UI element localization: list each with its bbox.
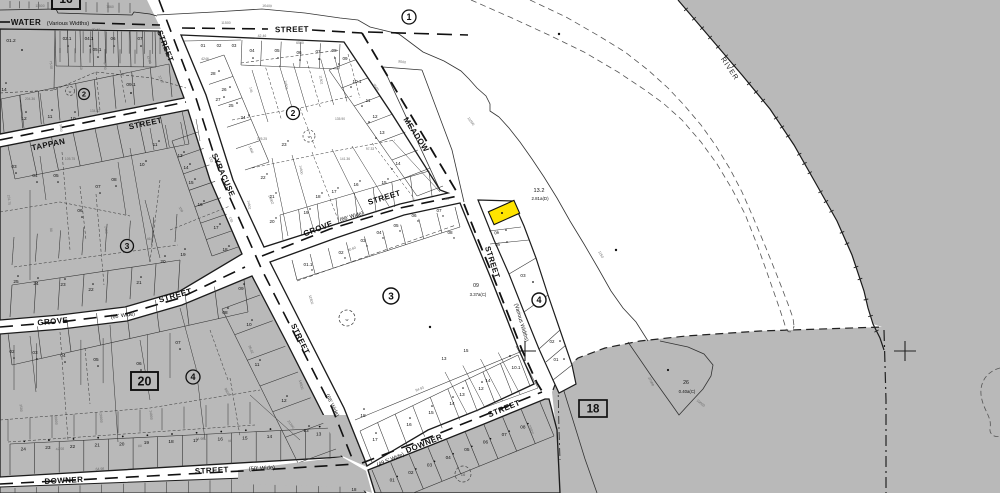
svg-text:04: 04 xyxy=(446,455,452,460)
svg-text:STREET: STREET xyxy=(195,465,229,476)
svg-text:16: 16 xyxy=(197,202,203,207)
svg-text:07: 07 xyxy=(137,36,143,41)
svg-text:11500: 11500 xyxy=(35,4,44,8)
svg-text:10: 10 xyxy=(246,322,252,327)
svg-text:02: 02 xyxy=(338,250,344,255)
svg-text:13.2: 13.2 xyxy=(534,188,545,194)
svg-text:13: 13 xyxy=(316,432,322,438)
svg-text:22: 22 xyxy=(260,175,266,180)
svg-text:0.40a(C): 0.40a(C) xyxy=(679,389,696,394)
svg-text:08: 08 xyxy=(520,425,526,430)
svg-text:98: 98 xyxy=(228,439,232,443)
svg-text:04: 04 xyxy=(60,353,66,358)
svg-text:25: 25 xyxy=(13,279,19,284)
svg-text:07: 07 xyxy=(502,432,508,437)
svg-text:26: 26 xyxy=(221,87,227,92)
svg-text:10: 10 xyxy=(461,472,466,477)
svg-text:01.1: 01.1 xyxy=(304,262,313,267)
svg-text:11: 11 xyxy=(48,114,53,120)
svg-text:18: 18 xyxy=(315,194,321,199)
svg-text:22: 22 xyxy=(88,287,94,292)
svg-text:16: 16 xyxy=(406,422,412,428)
svg-text:15: 15 xyxy=(242,435,248,441)
svg-text:2: 2 xyxy=(291,108,296,118)
svg-text:10.1: 10.1 xyxy=(512,365,521,370)
svg-text:2.81a(D): 2.81a(D) xyxy=(531,196,549,201)
svg-text:42.56: 42.56 xyxy=(56,447,65,452)
svg-text:21: 21 xyxy=(136,280,142,285)
svg-text:13: 13 xyxy=(442,356,447,361)
svg-text:16400: 16400 xyxy=(262,4,272,8)
svg-text:08: 08 xyxy=(447,230,453,235)
svg-text:01: 01 xyxy=(201,43,206,48)
svg-text:141.36: 141.36 xyxy=(340,157,350,161)
svg-text:46.6: 46.6 xyxy=(147,237,154,241)
svg-text:3: 3 xyxy=(125,241,130,251)
svg-text:07: 07 xyxy=(95,184,101,189)
svg-text:06: 06 xyxy=(77,208,83,213)
svg-text:2: 2 xyxy=(82,90,86,99)
svg-text:24: 24 xyxy=(33,281,39,286)
svg-text:14: 14 xyxy=(183,165,189,170)
svg-text:09: 09 xyxy=(342,56,348,61)
svg-text:05: 05 xyxy=(274,48,280,53)
svg-text:204.36: 204.36 xyxy=(25,97,35,101)
svg-text:20000: 20000 xyxy=(99,413,104,423)
svg-text:09: 09 xyxy=(473,283,479,289)
svg-text:3500: 3500 xyxy=(19,404,24,412)
svg-text:w: w xyxy=(346,317,349,322)
svg-text:16: 16 xyxy=(353,182,359,187)
svg-text:05: 05 xyxy=(393,223,399,228)
svg-text:84.98: 84.98 xyxy=(195,437,204,441)
svg-text:2400: 2400 xyxy=(104,226,109,234)
svg-text:02: 02 xyxy=(550,339,555,344)
svg-text:07: 07 xyxy=(175,340,181,345)
svg-text:125.25: 125.25 xyxy=(257,137,267,141)
svg-text:04: 04 xyxy=(249,48,255,53)
svg-text:12: 12 xyxy=(281,398,287,403)
svg-text:01.2: 01.2 xyxy=(6,38,16,44)
svg-text:9700: 9700 xyxy=(103,62,108,70)
svg-text:16: 16 xyxy=(59,0,73,6)
svg-text:10: 10 xyxy=(139,162,145,167)
svg-text:03: 03 xyxy=(11,164,17,169)
svg-text:3.37a(C): 3.37a(C) xyxy=(470,292,487,297)
svg-text:05: 05 xyxy=(464,447,470,452)
svg-text:14: 14 xyxy=(449,401,455,407)
svg-text:10: 10 xyxy=(70,116,76,122)
svg-text:04.1: 04.1 xyxy=(85,36,94,41)
svg-text:05: 05 xyxy=(53,173,59,178)
svg-text:STREET: STREET xyxy=(275,25,309,35)
svg-text:08: 08 xyxy=(111,177,117,182)
svg-text:15: 15 xyxy=(464,348,469,353)
svg-text:21: 21 xyxy=(94,443,100,449)
svg-text:78.60: 78.60 xyxy=(92,28,101,32)
svg-text:3: 3 xyxy=(388,292,394,303)
svg-text:90: 90 xyxy=(49,228,53,232)
svg-text:12: 12 xyxy=(21,116,27,122)
svg-text:11: 11 xyxy=(255,362,260,367)
svg-text:03: 03 xyxy=(232,43,237,48)
svg-text:01: 01 xyxy=(554,357,559,362)
svg-text:97.33: 97.33 xyxy=(366,147,374,151)
svg-text:06: 06 xyxy=(483,440,489,445)
svg-text:19: 19 xyxy=(180,252,186,257)
svg-text:02.1: 02.1 xyxy=(63,36,72,41)
svg-text:14: 14 xyxy=(1,87,7,93)
svg-text:80: 80 xyxy=(138,444,142,448)
svg-text:08: 08 xyxy=(222,310,228,315)
svg-text:42.46: 42.46 xyxy=(258,34,267,38)
svg-text:03: 03 xyxy=(32,350,38,355)
svg-text:09: 09 xyxy=(238,286,244,291)
svg-text:25: 25 xyxy=(228,103,234,108)
svg-text:20: 20 xyxy=(138,375,152,389)
svg-text:134.82: 134.82 xyxy=(90,109,100,113)
svg-text:06: 06 xyxy=(136,361,142,366)
svg-text:05: 05 xyxy=(93,357,99,362)
svg-text:12: 12 xyxy=(372,114,378,119)
svg-text:18: 18 xyxy=(587,404,600,416)
svg-text:15: 15 xyxy=(428,410,434,416)
svg-text:23: 23 xyxy=(45,445,51,451)
svg-text:16: 16 xyxy=(218,437,224,443)
svg-text:09.1: 09.1 xyxy=(126,82,136,88)
svg-text:18000: 18000 xyxy=(54,415,59,425)
svg-text:105.75: 105.75 xyxy=(65,157,75,161)
svg-text:11: 11 xyxy=(366,98,371,103)
svg-text:4: 4 xyxy=(190,372,195,382)
svg-text:13: 13 xyxy=(379,130,385,135)
svg-text:22: 22 xyxy=(70,444,76,450)
svg-text:17: 17 xyxy=(372,437,378,443)
svg-text:17: 17 xyxy=(213,225,219,230)
svg-text:18: 18 xyxy=(222,247,228,252)
svg-text:03: 03 xyxy=(520,273,526,278)
svg-text:10.1: 10.1 xyxy=(353,79,362,84)
svg-text:14900: 14900 xyxy=(149,410,154,420)
svg-text:06: 06 xyxy=(110,36,116,41)
svg-text:05.1: 05.1 xyxy=(93,47,102,52)
svg-text:20: 20 xyxy=(160,259,166,264)
svg-text:11500: 11500 xyxy=(221,21,231,25)
svg-text:18: 18 xyxy=(168,439,174,445)
svg-text:4246: 4246 xyxy=(201,57,209,61)
svg-text:50: 50 xyxy=(79,66,83,70)
svg-text:04: 04 xyxy=(376,230,382,235)
svg-text:03: 03 xyxy=(427,462,433,467)
svg-text:14: 14 xyxy=(267,434,273,440)
svg-text:06: 06 xyxy=(296,50,302,55)
svg-text:14: 14 xyxy=(395,161,401,166)
svg-text:24: 24 xyxy=(240,115,246,120)
svg-text:17: 17 xyxy=(331,189,337,194)
svg-text:15: 15 xyxy=(188,180,194,185)
svg-text:WATER: WATER xyxy=(11,18,41,27)
svg-text:04: 04 xyxy=(32,173,38,178)
svg-text:13: 13 xyxy=(303,428,309,433)
svg-text:26: 26 xyxy=(683,380,689,386)
svg-text:24: 24 xyxy=(21,446,27,452)
svg-text:20: 20 xyxy=(269,219,275,224)
svg-text:(Various Widths): (Various Widths) xyxy=(47,21,89,27)
svg-text:02: 02 xyxy=(408,470,414,475)
svg-text:06: 06 xyxy=(411,213,417,218)
svg-text:13: 13 xyxy=(459,392,465,398)
svg-text:23: 23 xyxy=(60,282,66,287)
svg-text:03: 03 xyxy=(360,238,366,243)
svg-text:7860: 7860 xyxy=(106,5,114,9)
svg-text:14: 14 xyxy=(486,378,491,383)
svg-text:15: 15 xyxy=(381,180,387,185)
svg-text:07: 07 xyxy=(436,208,442,213)
svg-text:28: 28 xyxy=(210,71,216,76)
svg-text:1: 1 xyxy=(406,12,411,22)
svg-text:64.98: 64.98 xyxy=(95,467,104,471)
svg-text:75.50: 75.50 xyxy=(49,61,54,70)
svg-text:02: 02 xyxy=(217,43,222,48)
svg-text:66: 66 xyxy=(445,197,449,201)
svg-text:4: 4 xyxy=(536,295,541,305)
svg-text:135.90: 135.90 xyxy=(335,117,345,121)
svg-text:19: 19 xyxy=(144,440,150,446)
svg-text:12: 12 xyxy=(478,386,484,392)
svg-text:6500: 6500 xyxy=(296,41,304,45)
svg-text:13: 13 xyxy=(177,153,183,158)
svg-text:20: 20 xyxy=(119,441,125,447)
svg-text:27: 27 xyxy=(215,97,221,102)
svg-text:23: 23 xyxy=(281,142,287,147)
svg-text:01: 01 xyxy=(390,477,396,482)
